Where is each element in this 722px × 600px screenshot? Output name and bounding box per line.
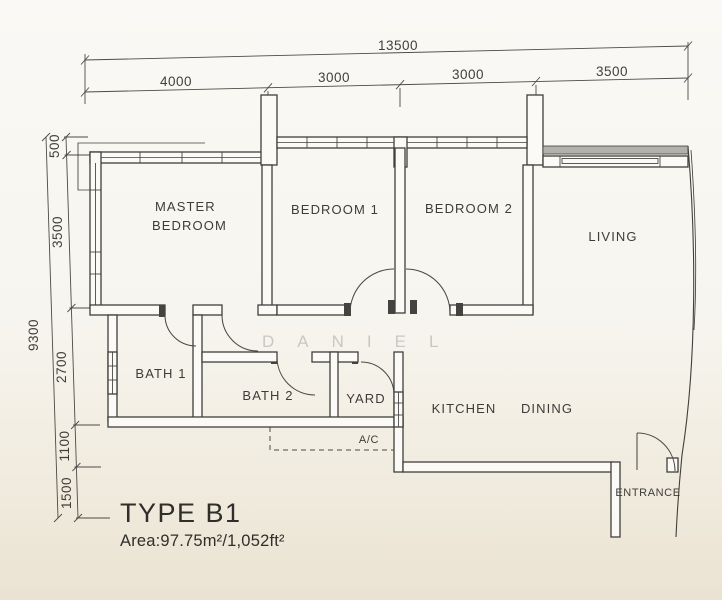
wall-bath2-yard	[330, 352, 338, 422]
wall-outer-right	[676, 146, 694, 537]
dim-label-top-seg4: 3500	[596, 64, 628, 79]
floor-plan: 13500 4000 3000 3000 3500 9300	[0, 0, 722, 600]
wall-baths-bottom	[108, 417, 403, 427]
wall-entrance-hinge-jamb	[667, 458, 678, 472]
plan-area-text: Area:97.75m²/1,052ft²	[120, 532, 285, 550]
scanned-floor-plan-page: 13500 4000 3000 3000 3500 9300	[0, 0, 722, 600]
door-jamb	[388, 300, 395, 314]
watermark-text: DANIEL	[262, 332, 461, 351]
room-label-master-line2: BEDROOM	[152, 218, 227, 233]
dim-label-top-seg2: 3000	[318, 70, 350, 85]
dim-label-left-seg4: 1100	[57, 430, 72, 461]
wall-hall-north	[193, 305, 222, 315]
wall-master-bottom	[90, 305, 165, 315]
dim-label-left-seg1: 500	[47, 134, 62, 158]
wall-kitchen-bottom	[403, 462, 612, 472]
wall-bed1-bed2	[395, 148, 405, 313]
wall-master-bed1	[262, 165, 272, 313]
door-arc-master	[222, 315, 258, 351]
top-dimension-chain: 13500 4000 3000 3000 3500	[81, 38, 692, 110]
wall-bed1-bottom	[277, 305, 350, 315]
room-label-bedroom1: BEDROOM 1	[291, 202, 379, 217]
plan-type-title: TYPE B1	[120, 498, 242, 528]
door-arc-bedroom1	[350, 269, 394, 313]
room-label-bath2: BATH 2	[242, 388, 293, 403]
dim-label-left-seg5: 1500	[59, 477, 74, 509]
door-jamb	[410, 300, 417, 314]
window-hatch-living	[543, 146, 688, 154]
room-label-dining: DINING	[521, 401, 573, 416]
dim-label-top-seg1: 4000	[160, 74, 192, 89]
doors	[165, 269, 675, 471]
dim-label-top-seg3: 3000	[452, 67, 484, 82]
door-jamb	[456, 303, 463, 316]
room-label-living: LIVING	[588, 229, 637, 244]
pillar-master-bed1	[261, 95, 277, 165]
walls	[78, 95, 696, 537]
wall-hall-north	[258, 305, 277, 315]
room-label-master-line1: MASTER	[155, 199, 216, 214]
door-jamb	[159, 305, 165, 317]
room-label-ac: A/C	[359, 434, 379, 446]
dim-label-left-seg2: 3500	[50, 216, 65, 248]
dim-label-top-total: 13500	[378, 38, 418, 53]
wall-bath2-top	[202, 352, 277, 362]
wall-entrance-left	[611, 462, 620, 537]
room-label-entrance: ENTRANCE	[615, 487, 680, 499]
wall-bed2-living	[523, 165, 533, 313]
pillar-bed2-living	[527, 95, 543, 165]
title-block: TYPE B1 Area:97.75m²/1,052ft²	[120, 498, 285, 550]
dim-label-left-seg3: 2700	[54, 351, 69, 383]
room-label-kitchen: KITCHEN	[432, 401, 497, 416]
door-arc-bath1	[165, 315, 196, 346]
room-label-bath1: BATH 1	[135, 366, 186, 381]
window-band-living	[543, 156, 688, 167]
wall-bath1-bath2	[193, 315, 202, 422]
dim-label-left-total: 9300	[26, 319, 41, 351]
room-label-yard: YARD	[346, 391, 386, 406]
room-label-bedroom2: BEDROOM 2	[425, 201, 513, 216]
